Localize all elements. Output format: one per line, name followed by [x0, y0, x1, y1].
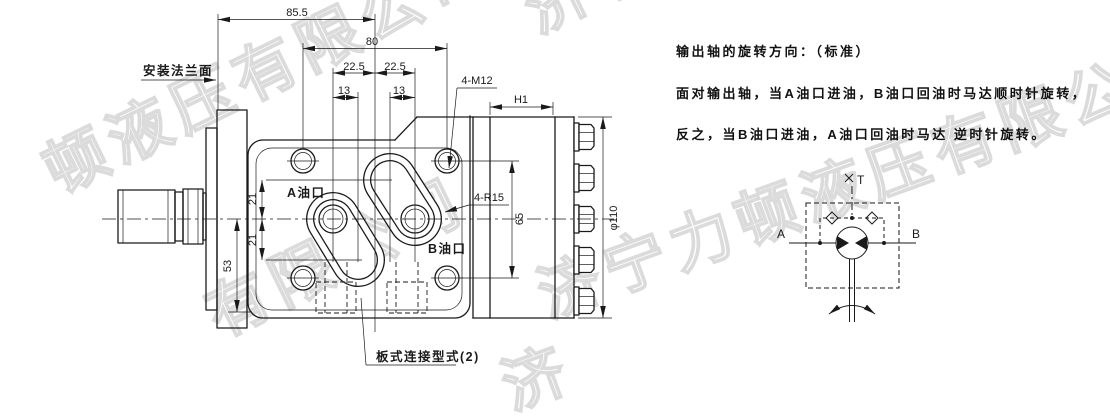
- svg-text:65: 65: [514, 213, 526, 225]
- label-plate-connection: 板式连接型式(2): [361, 298, 480, 365]
- dim-21-upper: 21: [247, 180, 262, 219]
- svg-text:H1: H1: [514, 94, 528, 106]
- watermark-company-3: 济宁力顿液压有限公司: [529, 27, 1110, 331]
- svg-text:φ110: φ110: [608, 206, 620, 231]
- drawing-page: 顿液压有限公司 济宁 济宁力顿液压有限公司 有限公司 济: [0, 0, 1110, 416]
- svg-text:21: 21: [247, 193, 259, 205]
- rotation-notes: 输出轴的旋转方向：（标准） 面对输出轴，当A油口进油，B油口回油时马达顺时针旋转…: [676, 44, 1087, 142]
- svg-text:板式连接型式(2): 板式连接型式(2): [376, 349, 480, 364]
- motor-orthographic-view: 85.5 80 22.5 22.5 13 13: [102, 7, 620, 365]
- bolt: [574, 287, 594, 315]
- motor-dimension-drawing: 顿液压有限公司 济宁 济宁力顿液压有限公司 有限公司 济: [0, 0, 1110, 416]
- schematic-port-b-label: B: [912, 227, 920, 241]
- oil-port-a-slot: [319, 205, 358, 260]
- flow-triangle-right: [855, 236, 867, 250]
- svg-text:13: 13: [338, 85, 350, 97]
- label-port-b: B油口: [428, 241, 467, 256]
- drain-label: T: [857, 173, 865, 187]
- dim-65: 65: [512, 161, 526, 278]
- label-mounting-flange: 安装法兰面: [141, 63, 216, 80]
- svg-text:53: 53: [222, 260, 234, 272]
- svg-text:22.5: 22.5: [384, 61, 405, 73]
- output-shaft: [118, 189, 206, 244]
- note-line-1: 输出轴的旋转方向：（标准）: [676, 44, 871, 59]
- svg-text:13: 13: [393, 85, 405, 97]
- note-line-3: 反之，当B油口进油，A油口回油时马达 逆时针旋转。: [676, 127, 1047, 142]
- label-port-a: A油口: [287, 185, 326, 200]
- dim-13-right: 13: [390, 85, 415, 98]
- bolt: [574, 164, 594, 192]
- svg-text:21: 21: [247, 234, 259, 246]
- watermark-company-2: 济宁: [514, 0, 670, 47]
- watermark-layer: 顿液压有限公司 济宁 济宁力顿液压有限公司 有限公司 济: [34, 0, 1110, 416]
- svg-text:4-R15: 4-R15: [474, 192, 504, 204]
- flow-triangle-left: [837, 236, 849, 250]
- motor-symbol: [836, 227, 868, 259]
- oil-port-b-slot: [390, 180, 429, 233]
- svg-text:4-M12: 4-M12: [461, 75, 492, 87]
- note-line-2: 面对输出轴，当A油口进油，B油口回油时马达顺时针旋转，: [676, 86, 1087, 101]
- dim-22-5-right: 22.5: [375, 61, 415, 73]
- svg-text:85.5: 85.5: [286, 7, 307, 19]
- bolt: [574, 123, 594, 151]
- dim-21-lower: 21: [247, 219, 262, 260]
- output-shaft-symbol: [829, 259, 875, 322]
- bidirectional-rotation-arrow: [829, 306, 875, 315]
- dim-13-left: 13: [333, 85, 358, 98]
- schematic-port-a-label: A: [777, 227, 785, 241]
- dim-h1: H1: [490, 94, 553, 115]
- svg-text:80: 80: [366, 36, 378, 48]
- svg-text:安装法兰面: 安装法兰面: [143, 63, 213, 78]
- watermark-company-5: 济: [493, 334, 582, 416]
- svg-text:22.5: 22.5: [343, 61, 364, 73]
- bolt: [574, 246, 594, 274]
